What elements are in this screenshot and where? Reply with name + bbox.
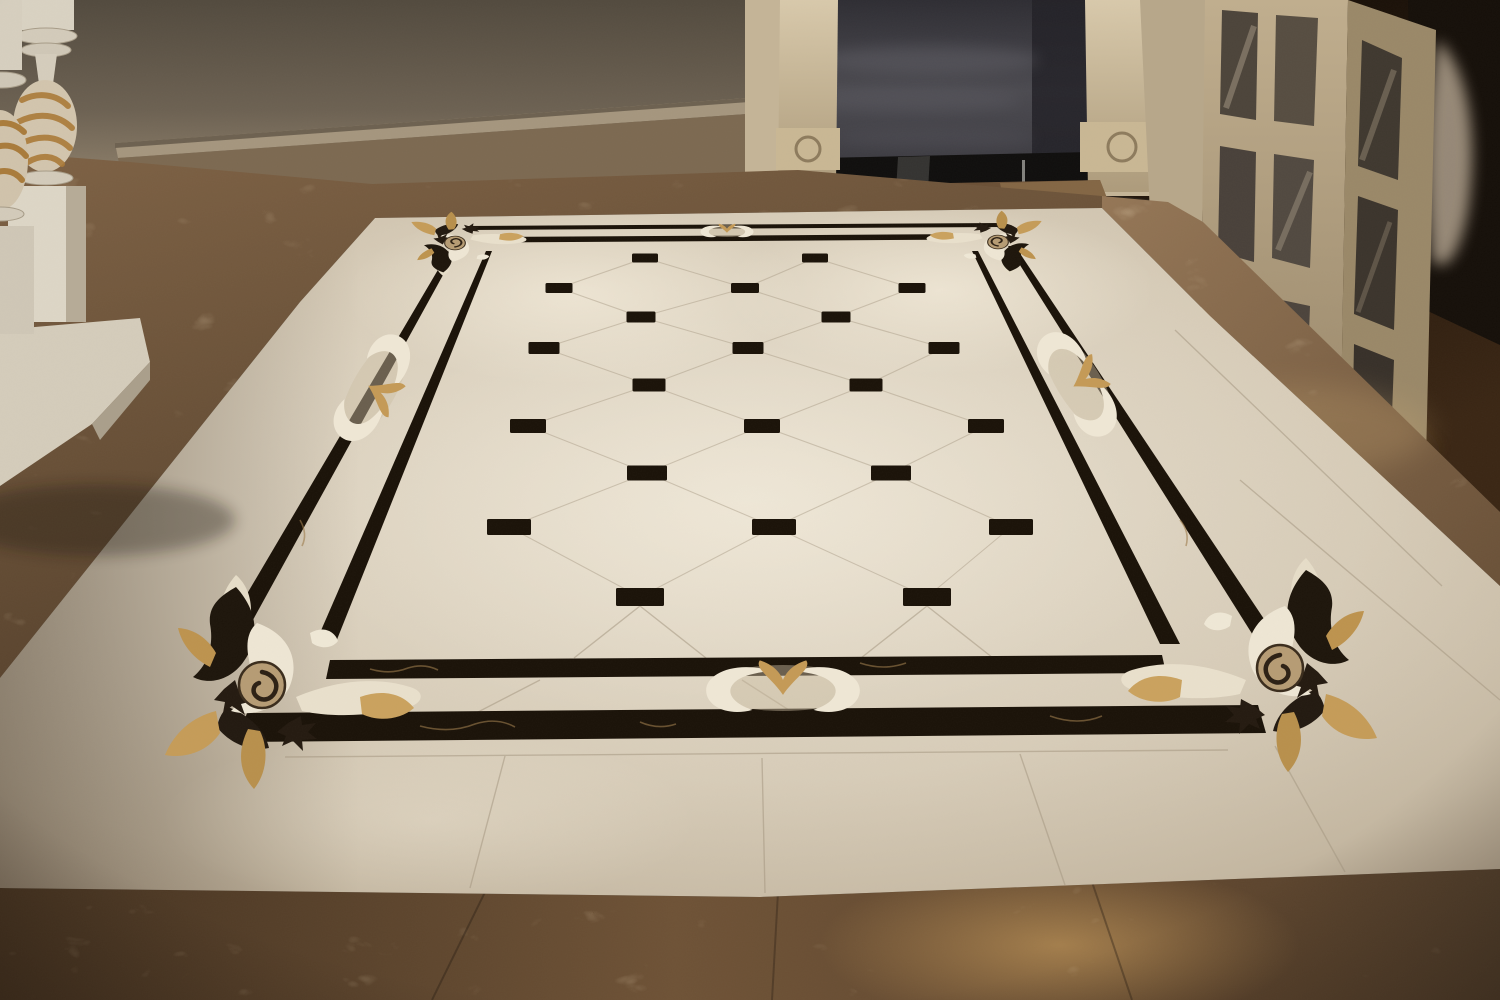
foyer-photo [0, 0, 1500, 1000]
scene-root [0, 0, 1500, 1000]
vignette [0, 0, 1500, 1000]
